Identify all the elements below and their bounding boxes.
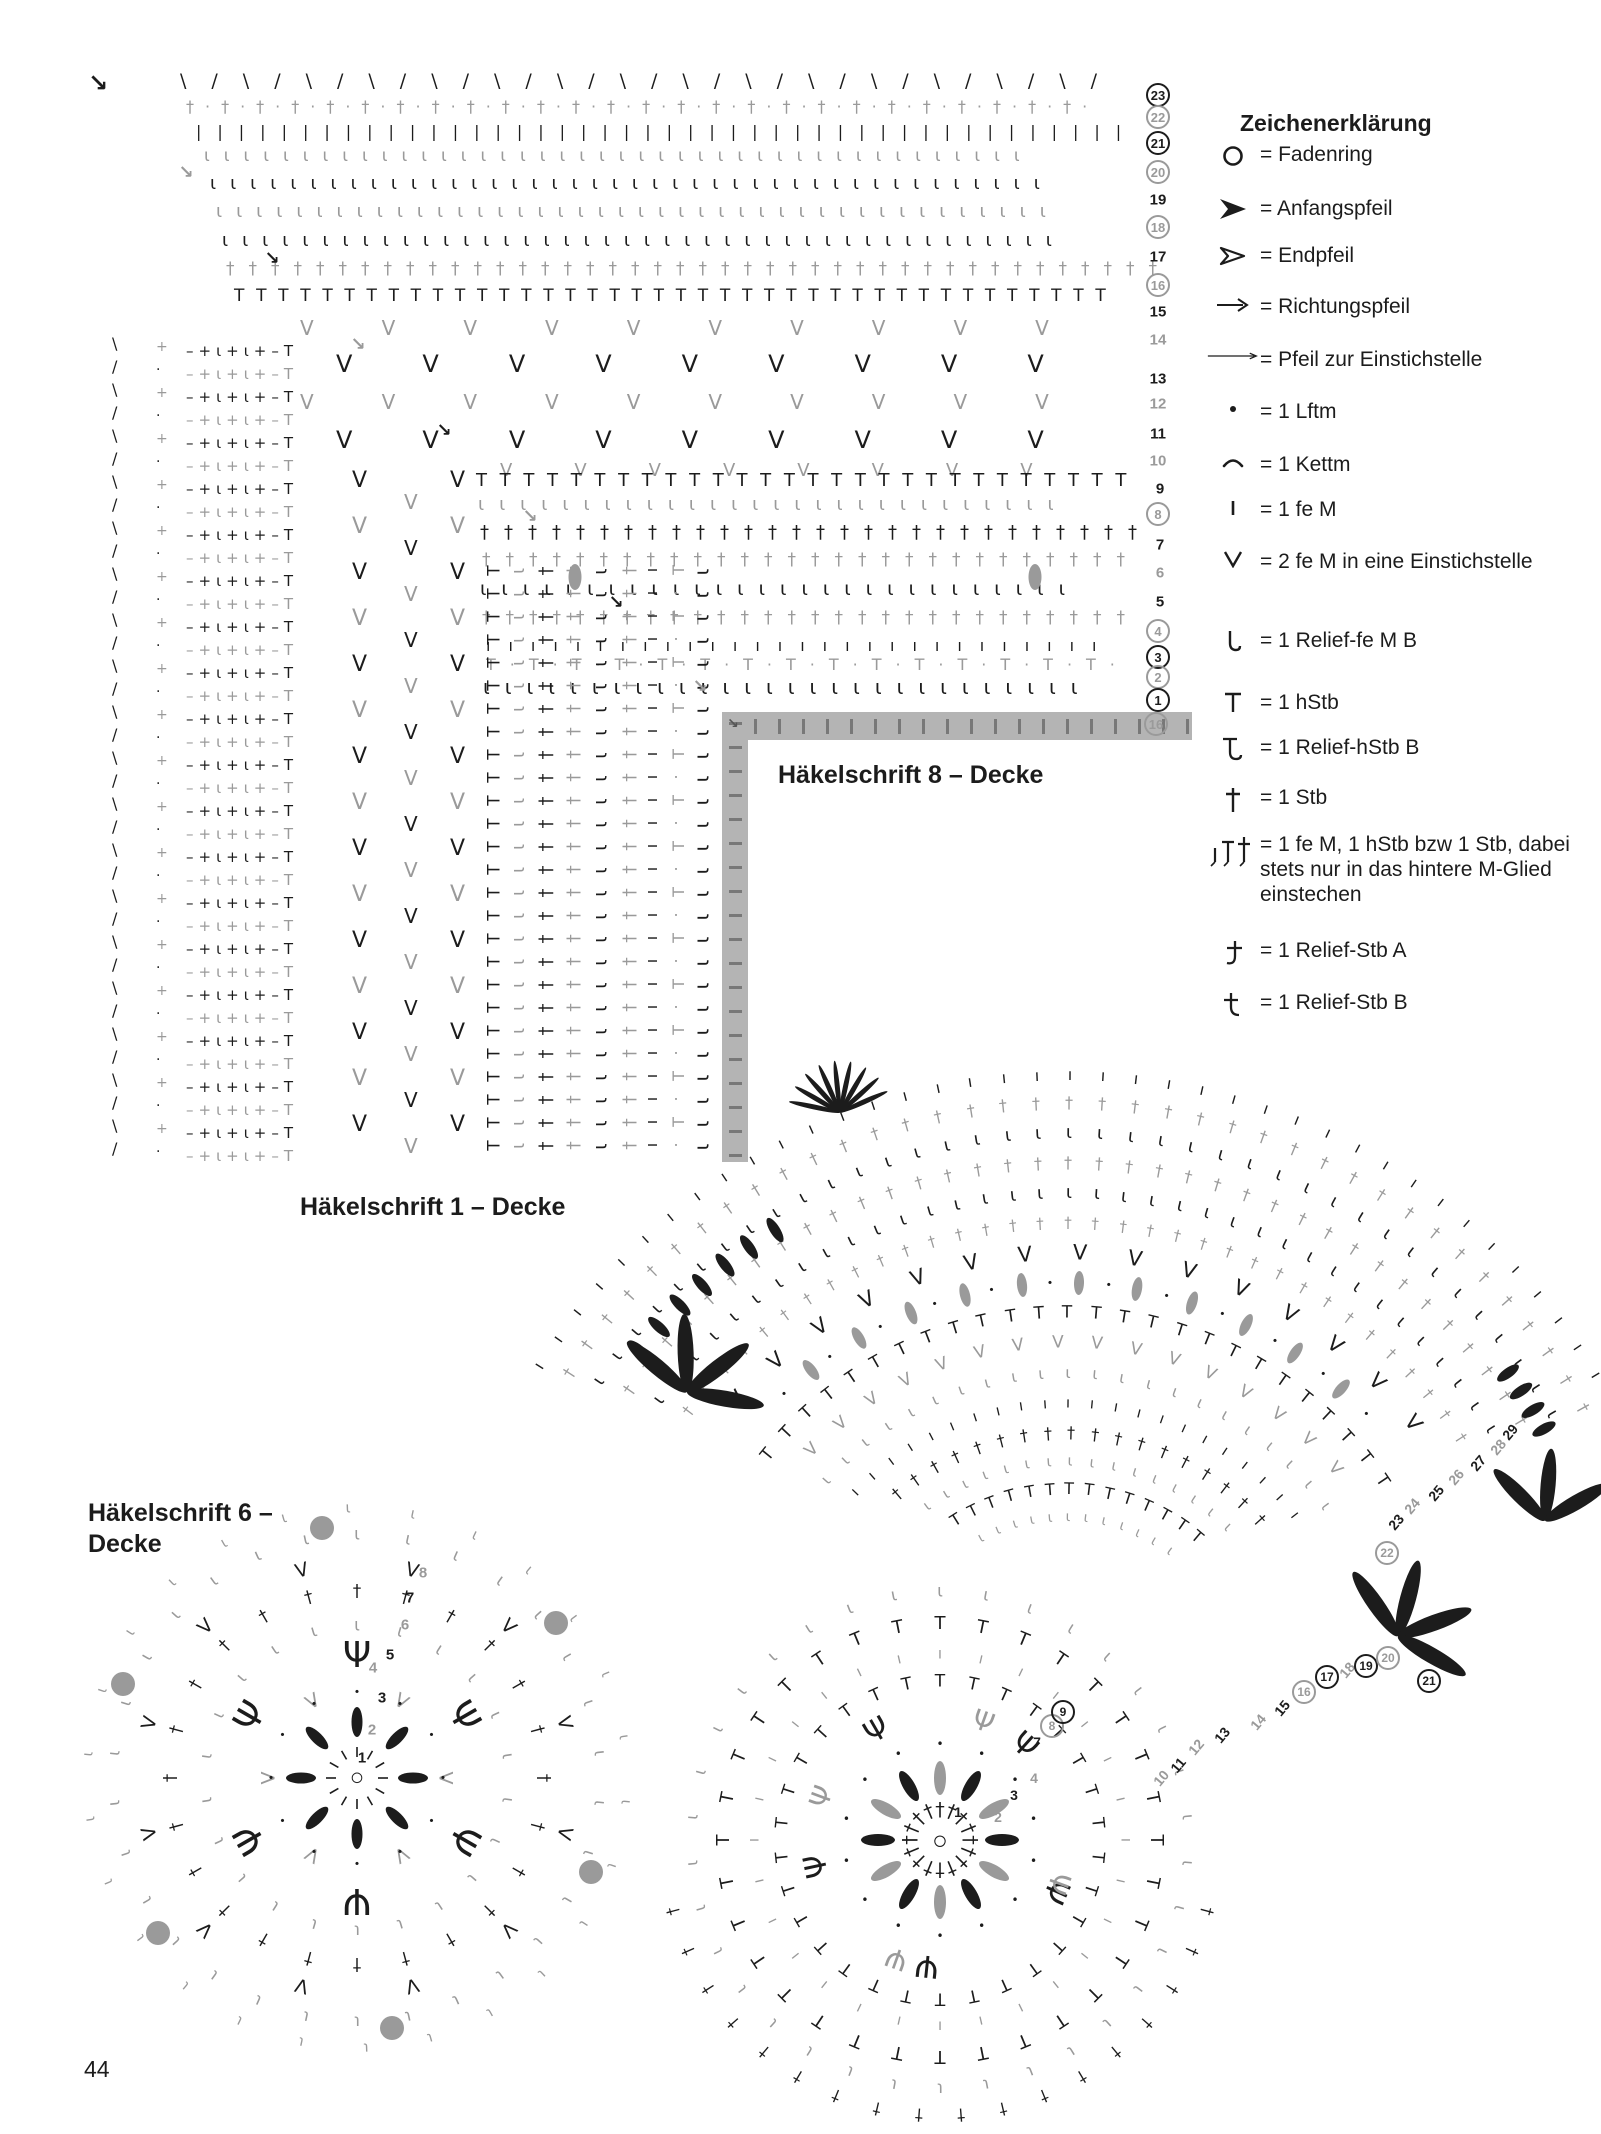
crochet-symbol: T — [1249, 1355, 1267, 1375]
crochet-symbol: ı — [644, 844, 660, 848]
crochet-symbol: \ — [112, 842, 117, 858]
crochet-symbol: † — [1295, 1210, 1309, 1228]
crochet-symbol: † — [1557, 1372, 1575, 1387]
crochet-symbol: ɩ — [1221, 1520, 1235, 1534]
crochet-symbol: ɩ — [1542, 1407, 1561, 1421]
crochet-symbol: T — [671, 703, 687, 713]
crochet-symbol: V — [194, 1918, 217, 1941]
crochet-symbol: V — [404, 676, 418, 696]
crochet-symbol: V — [1236, 1382, 1255, 1403]
crochet-symbol: ı — [1078, 1718, 1092, 1731]
row-number: 12 — [1150, 397, 1167, 412]
row-number: ↘ — [264, 249, 279, 267]
crochet-symbol: † — [527, 1820, 546, 1833]
crochet-symbol: + — [156, 1122, 168, 1136]
crochet-symbol: ı — [1078, 1950, 1092, 1963]
crochet-symbol: ı — [1220, 1444, 1232, 1459]
crochet-symbol: ɩ — [492, 1966, 507, 1983]
crochet-symbol: T — [777, 1423, 796, 1442]
crochet-symbol: ɩ — [1010, 1369, 1018, 1386]
crochet-symbol: † — [1459, 1339, 1476, 1356]
crochet-symbol: –+ɩ+ɩ+–T — [186, 505, 298, 520]
crochet-symbol: ɩ — [1149, 1534, 1160, 1548]
crochet-symbol: \ — [112, 1072, 117, 1088]
crochet-symbol: V — [404, 860, 418, 880]
crochet-symbol: ɩ — [1178, 1813, 1195, 1820]
crochet-symbol: ɩ — [1327, 1262, 1342, 1280]
crochet-symbol: V — [1401, 1411, 1426, 1435]
crochet-symbol: T — [1172, 1321, 1187, 1340]
crochet-symbol: ı — [1292, 1112, 1302, 1129]
crochet-symbol: ɩ — [853, 1163, 865, 1182]
crochet-oval — [976, 1857, 1011, 1884]
crochet-symbol: T — [758, 1445, 778, 1464]
crochet-symbol: † — [620, 1286, 637, 1303]
crochet-symbol: † — [1427, 1224, 1443, 1241]
crochet-symbol: ɩ — [559, 1650, 577, 1663]
crochet-oval — [1530, 1419, 1558, 1440]
crochet-symbol: † — [1008, 1218, 1017, 1234]
crochet-symbol: ɩ — [1009, 1186, 1017, 1205]
crochet-symbol: T — [487, 657, 504, 667]
crochet-symbol: ɩ — [980, 1467, 990, 1483]
crochet-symbol: T — [777, 1982, 798, 2003]
crochet-symbol: ɩ — [803, 1620, 817, 1637]
crochet-symbol: ı — [1034, 1068, 1039, 1084]
crochet-symbol: † — [622, 1118, 639, 1127]
row-number: ↘ — [350, 335, 365, 353]
crochet-symbol: † — [622, 727, 639, 736]
crochet-symbol: ɩ — [592, 706, 611, 712]
crochet-oval — [303, 1803, 332, 1832]
crochet-symbol: –+ɩ+ɩ+–T — [186, 459, 298, 474]
crochet-oval — [1029, 564, 1042, 590]
row-number: 25 — [1426, 1483, 1447, 1504]
legend-item-hstb: = 1 hStb — [1206, 690, 1586, 715]
crochet-symbol: † — [957, 2107, 966, 2124]
crochet-symbol: T — [793, 1752, 813, 1769]
crochet-symbol: ı — [1273, 1490, 1287, 1503]
crochet-symbol: ɩ — [592, 614, 611, 620]
crochet-symbol: ɩ — [252, 1991, 264, 2009]
crochet-symbol: T — [487, 588, 504, 598]
crochet-symbol: ı — [644, 637, 660, 641]
relief-stb-a-icon — [1206, 938, 1260, 969]
crochet-symbol: T — [1372, 1472, 1392, 1490]
crochet-symbol: T — [1067, 1910, 1087, 1927]
crochet-symbol: † — [527, 1724, 546, 1737]
page-number: 44 — [84, 2056, 110, 2083]
crochet-symbol: V — [404, 1044, 418, 1064]
crochet-symbol: T — [1082, 1677, 1103, 1698]
crochet-symbol: + — [156, 662, 168, 676]
crochet-symbol: ɩ — [510, 936, 528, 942]
crochet-symbol: V — [352, 792, 367, 814]
crochet-symbol: ɩ — [1024, 1600, 1036, 1618]
crochet-symbol: · — [669, 1142, 685, 1147]
row-number: 9 — [1156, 482, 1164, 497]
crochet-symbol: ɩ — [1004, 1127, 1012, 1146]
legend-label: = 1 Relief-Stb B — [1260, 990, 1570, 1015]
crochet-symbol: V — [450, 516, 465, 538]
crochet-symbol: T — [1224, 1342, 1241, 1362]
crochet-symbol: · — [156, 363, 160, 377]
crochet-symbol: † — [1420, 1386, 1436, 1401]
crochet-symbol: ɩ — [346, 1501, 352, 1516]
crochet-symbol: • — [877, 1321, 884, 1332]
crochet-symbol: –+ɩ+ɩ+–T — [186, 873, 298, 888]
crochet-symbol: • — [279, 1730, 286, 1741]
legend-item-2fem: = 2 fe M in eine Einstichstelle — [1206, 549, 1586, 574]
crochet-oval — [902, 1300, 920, 1326]
crochet-symbol: V — [553, 1714, 575, 1731]
crochet-symbol: ɩ — [1110, 1458, 1118, 1474]
crochet-symbol: † — [622, 704, 639, 713]
crochet-symbol: ɩ — [765, 1648, 781, 1664]
crochet-symbol: –+ɩ+ɩ+–T — [186, 965, 298, 980]
crochet-symbol: † — [622, 750, 639, 759]
crochet-symbol: · — [669, 1050, 685, 1055]
crochet-symbol: ı — [967, 1074, 974, 1090]
crochet-symbol: † — [943, 1167, 954, 1184]
crochet-symbol: ı — [818, 1978, 831, 1992]
crochet-symbol: • — [895, 1748, 902, 1760]
relief-fem-b-icon — [1206, 628, 1260, 655]
crochet-symbol: † — [972, 1439, 985, 1457]
crochet-symbol: ɩ — [234, 1870, 251, 1885]
crochet-symbol: ɩ — [734, 1982, 751, 1997]
crochet-symbol: ɩ — [691, 753, 711, 760]
einstich-pfeil-icon — [1206, 347, 1260, 364]
crochet-symbol: • — [311, 1847, 318, 1858]
crochet-symbol: † — [566, 957, 583, 966]
crochet-symbol: • — [931, 1299, 938, 1310]
crochet-symbol: ı — [570, 1305, 585, 1318]
crochet-symbol: T — [966, 1985, 980, 2004]
row-number: 22 — [1375, 1541, 1399, 1565]
row-number: 17 — [1150, 250, 1167, 265]
crochet-symbol: ɩ — [691, 1144, 711, 1151]
crochet-symbol: † — [1153, 1163, 1164, 1180]
crochet-symbol: · — [156, 501, 160, 515]
crochet-symbol: T — [1050, 1650, 1069, 1671]
crochet-symbol: ɩ — [1118, 1370, 1126, 1387]
crochet-symbol: T — [671, 1071, 687, 1081]
crochet-symbol: ɩ — [510, 982, 528, 988]
crochet-symbol: ı — [550, 1332, 566, 1345]
crochet-symbol: ı — [1000, 1070, 1006, 1086]
crochet-symbol: ɩ — [1150, 1471, 1160, 1487]
crochet-oval — [310, 1516, 334, 1540]
crochet-symbol: ɩ — [268, 1641, 282, 1658]
crochet-symbol-row: ɩɩɩɩɩɩɩɩɩɩɩɩɩɩɩɩɩɩɩɩɩɩɩɩɩɩɩɩɩɩɩɩɩɩɩɩɩɩɩɩ… — [210, 175, 1054, 193]
crochet-symbol: T — [868, 1974, 884, 1994]
crochet-symbol-row: ɩɩɩɩɩɩɩɩɩɩɩɩɩɩɩɩɩɩɩɩɩɩɩɩɩɩɩɩɩɩɩɩɩɩɩɩɩɩɩɩ… — [204, 148, 1034, 165]
crochet-symbol: ɩ — [1303, 1247, 1317, 1266]
crochet-symbol: ɩ — [354, 2013, 360, 2030]
crochet-symbol: ɩ — [912, 1143, 923, 1162]
crochet-symbol: V — [450, 1022, 465, 1044]
crochet-symbol: ɩ — [890, 2075, 899, 2093]
crochet-symbol: · — [156, 409, 160, 423]
crochet-symbol: † — [566, 681, 583, 690]
crochet-symbol: ɩ — [592, 1005, 611, 1011]
crochet-symbol: ı — [614, 1255, 629, 1269]
crochet-symbol: † — [801, 1291, 815, 1308]
crochet-symbol: ɩ — [469, 1527, 480, 1543]
crochet-symbol: ɩ — [464, 1870, 481, 1885]
crochet-symbol: ɩ — [592, 798, 611, 804]
crochet-oval — [544, 1611, 568, 1635]
crochet-symbol: ı — [644, 591, 660, 595]
crochet-symbol: / — [112, 359, 117, 375]
crochet-symbol: T — [935, 1674, 945, 1691]
crochet-symbol: ɩ — [925, 1202, 936, 1221]
crochet-symbol: ı — [787, 1718, 801, 1731]
crochet-symbol: ɩ — [942, 1136, 952, 1155]
crochet-symbol: † — [1157, 1443, 1170, 1461]
crochet-symbol: † — [622, 865, 639, 874]
crochet-symbol: ı — [1508, 1262, 1523, 1276]
crochet-symbol: V — [808, 1315, 832, 1340]
crochet-symbol: † — [1145, 1223, 1155, 1239]
crochet-symbol: † — [566, 658, 583, 667]
crochet-symbol: † — [622, 773, 639, 782]
crochet-symbol: † — [1124, 1158, 1134, 1175]
crochet-symbol: † — [1094, 1156, 1103, 1172]
crochet-symbol: ɩ — [845, 2062, 857, 2080]
crochet-symbol: V — [404, 1090, 418, 1110]
crochet-symbol: \ — [112, 1026, 117, 1042]
crochet-symbol: ɩ — [579, 1848, 597, 1859]
crochet-symbol: † — [1452, 1245, 1469, 1262]
crochet-oval — [382, 1803, 411, 1832]
crochet-symbol: T — [984, 1493, 999, 1511]
crochet-symbol: ɩ — [691, 730, 711, 737]
crochet-symbol-row: TTTTTTTTTTTTTTTTTTTTTTTTTTTT — [476, 472, 1139, 490]
crochet-symbol: –+ɩ+ɩ+–T — [186, 827, 298, 842]
crochet-symbol: † — [1223, 1244, 1235, 1261]
halbes-staebchen-icon — [1206, 690, 1260, 715]
crochet-symbol: T — [774, 1850, 792, 1862]
crochet-symbol: ı — [1135, 1405, 1143, 1421]
crochet-symbol: ɩ — [837, 1452, 852, 1467]
crochet-symbol: T — [671, 749, 687, 759]
crochet-symbol: · — [156, 593, 160, 607]
crochet-symbol: ı — [1133, 1071, 1139, 1087]
crochet-symbol: T — [1067, 1752, 1087, 1769]
crochet-symbol: ı — [644, 936, 660, 940]
crochet-symbol: \ — [112, 520, 117, 536]
crochet-symbol: ɩ — [691, 845, 711, 852]
crochet-symbol: ı — [787, 1950, 801, 1963]
crochet-symbol: ɩ — [510, 637, 528, 643]
crochet-symbol: V — [972, 1344, 987, 1363]
row-number: 16 — [1146, 273, 1170, 297]
row-number: 12 — [1186, 1737, 1207, 1758]
crochet-symbol: † — [1363, 1327, 1378, 1343]
crochet-symbol: † — [622, 589, 639, 598]
crochet-symbol: T — [838, 1958, 856, 1978]
crochet-symbol: ı — [1016, 1665, 1026, 1680]
crochet-symbol: † — [1395, 1276, 1411, 1293]
crochet-symbol: T — [1142, 1875, 1162, 1889]
crochet-symbol: ı — [1050, 1978, 1063, 1992]
crochet-symbol: ɩ — [409, 1506, 417, 1522]
crochet-symbol: † — [1539, 1344, 1557, 1360]
crochet-symbol: / — [112, 1095, 117, 1111]
crochet-symbol: T — [813, 1725, 833, 1744]
crochet-symbol: ɩ — [592, 982, 611, 988]
legend-item-richtungspfeil: = Richtungspfeil — [1206, 294, 1586, 319]
crochet-symbol: ɩ — [709, 1944, 727, 1957]
crochet-symbol: ɩ — [1413, 1333, 1430, 1350]
crochet-symbol: ı — [1200, 1431, 1211, 1446]
crochet-symbol: ɩ — [492, 1573, 507, 1590]
crochet-symbol: ɩ — [1066, 1510, 1071, 1524]
crochet-symbol: ɩ — [592, 1074, 611, 1080]
crochet-symbol: ɩ — [795, 1258, 810, 1277]
crochet-symbol: † — [535, 1774, 552, 1783]
crochet-symbol: T — [793, 1910, 813, 1927]
crochet-oval — [869, 1795, 904, 1822]
crochet-symbol: ı — [354, 1795, 359, 1813]
crochet-symbol: V — [352, 746, 367, 768]
crochet-oval — [934, 1885, 946, 1919]
crochet-symbol: T — [935, 2047, 946, 2065]
crochet-symbol: ɩ — [432, 1897, 446, 1914]
crochet-symbol: ı — [363, 1791, 376, 1809]
crochet-symbol: † — [538, 659, 556, 668]
crochet-symbol: T — [487, 611, 504, 621]
crochet-oval — [1016, 1273, 1028, 1298]
crochet-symbol: ɩ — [845, 1600, 857, 1618]
crochet-symbol: • — [861, 1894, 868, 1906]
crochet-symbol: † — [901, 1835, 920, 1845]
crochet-symbol: –+ɩ+ɩ+–T — [186, 1080, 298, 1095]
crochet-symbol: Ψ — [343, 1882, 371, 1918]
crochet-symbol: ɩ — [1130, 1464, 1139, 1480]
crochet-symbol: † — [538, 1004, 556, 1013]
crochet-symbol: V — [553, 1825, 575, 1842]
crochet-symbol: ɩ — [592, 568, 611, 574]
crochet-symbol: ɩ — [937, 1584, 943, 1601]
crochet-symbol: † — [622, 681, 639, 690]
crochet-symbol: \ — [112, 704, 117, 720]
crochet-symbol: ı — [1119, 1838, 1134, 1842]
row-number: 23 — [1386, 1512, 1407, 1533]
crochet-symbol: V — [194, 1615, 217, 1638]
crochet-symbol: • — [978, 1748, 985, 1760]
crochet-symbol: ɩ — [1205, 1505, 1218, 1520]
crochet-symbol: –+ɩ+ɩ+–T — [186, 436, 298, 451]
legend-item-lftm: = 1 Lftm — [1206, 399, 1586, 424]
crochet-symbol: ɩ — [981, 2075, 990, 2093]
crochet-symbol: T — [1024, 1483, 1036, 1500]
crochet-symbol: V — [934, 1355, 951, 1375]
crochet-symbol: ɩ — [592, 1051, 611, 1057]
crochet-symbol: † — [256, 1607, 272, 1626]
crochet-symbol: ɩ — [117, 1698, 135, 1709]
crochet-symbol: V — [1364, 1369, 1389, 1394]
crochet-symbol: † — [1317, 1154, 1331, 1172]
crochet-symbol: † — [953, 1227, 964, 1243]
crochet-symbol-layer: \/\/\/\/\/\/\/\/\/\/\/\/\/\/\/†·†·†·†·†·… — [0, 0, 1601, 2134]
crochet-symbol: • — [978, 1920, 985, 1932]
crochet-symbol: ı — [337, 1746, 350, 1764]
crochet-symbol: ɩ — [510, 591, 528, 597]
row-number: 26 — [1446, 1467, 1467, 1488]
crochet-symbol-row: VVVVVVVVVV — [300, 392, 1117, 412]
crochet-symbol: ɩ — [845, 1231, 858, 1250]
crochet-symbol: ı — [751, 1878, 767, 1885]
crochet-symbol: ı — [938, 1647, 942, 1662]
crochet-symbol: ı — [884, 1454, 896, 1469]
crochet-symbol: † — [163, 1774, 180, 1783]
crochet-symbol: Ψ — [805, 1782, 838, 1811]
crochet-symbol: ɩ — [510, 729, 528, 735]
crochet-symbol: ı — [1485, 1238, 1499, 1253]
crochet-symbol: V — [1012, 1337, 1026, 1355]
crochet-symbol: V — [450, 608, 465, 630]
crochet-symbol: ı — [1089, 1397, 1095, 1412]
crochet-symbol: ɩ — [198, 1796, 216, 1804]
crochet-symbol-row: VVVVVVVVV — [336, 352, 1114, 376]
crochet-symbol: † — [566, 796, 583, 805]
crochet-symbol: ı — [1198, 1082, 1206, 1099]
crochet-symbol: ı — [644, 752, 660, 756]
crochet-symbol: T — [849, 1630, 866, 1651]
crochet-symbol: V — [404, 906, 418, 926]
crochet-symbol: • — [895, 1920, 902, 1932]
crochet-symbol: • — [354, 1687, 361, 1698]
crochet-symbol: ɩ — [980, 1190, 989, 1209]
crochet-symbol: V — [1017, 1244, 1033, 1266]
crochet-symbol: ɩ — [107, 1749, 125, 1757]
crochet-symbol: ı — [1016, 2000, 1026, 2015]
crochet-symbol: • — [397, 1847, 404, 1858]
crochet-symbol: + — [156, 524, 168, 538]
crochet-symbol: † — [995, 1432, 1007, 1449]
crochet-symbol: ɩ — [1038, 1366, 1045, 1382]
crochet-symbol: T — [1024, 1702, 1042, 1722]
crochet-symbol: ı — [644, 890, 660, 894]
legend-label: = 1 Relief-fe M B — [1260, 628, 1570, 653]
crochet-symbol: ɩ — [1300, 1178, 1313, 1197]
anfangspfeil-icon — [1206, 196, 1260, 221]
crochet-symbol: T — [947, 1511, 964, 1530]
crochet-symbol: ɩ — [1175, 1197, 1185, 1216]
crochet-symbol: ɩ — [648, 1300, 665, 1317]
crochet-symbol: ɩ — [168, 1933, 184, 1949]
crochet-symbol: Ψ — [229, 1818, 274, 1861]
crochet-symbol: T — [975, 2042, 989, 2062]
crochet-symbol: –+ɩ+ɩ+–T — [186, 712, 298, 727]
crochet-symbol: T — [1317, 1407, 1336, 1427]
crochet-symbol: ı — [644, 1097, 660, 1101]
crochet-symbol: † — [538, 1050, 556, 1059]
crochet-symbol: ɩ — [210, 1835, 228, 1847]
crochet-symbol: ɩ — [1449, 1375, 1467, 1391]
crochet-symbol: T — [1355, 1449, 1375, 1468]
crochet-symbol: † — [566, 727, 583, 736]
crochet-symbol: · — [669, 682, 685, 687]
crochet-symbol: ɩ — [234, 2013, 245, 2029]
crochet-symbol: † — [966, 1102, 976, 1119]
crochet-symbol: T — [671, 887, 687, 897]
crochet-symbol: † — [622, 1141, 639, 1150]
crochet-symbol: † — [442, 1607, 458, 1626]
